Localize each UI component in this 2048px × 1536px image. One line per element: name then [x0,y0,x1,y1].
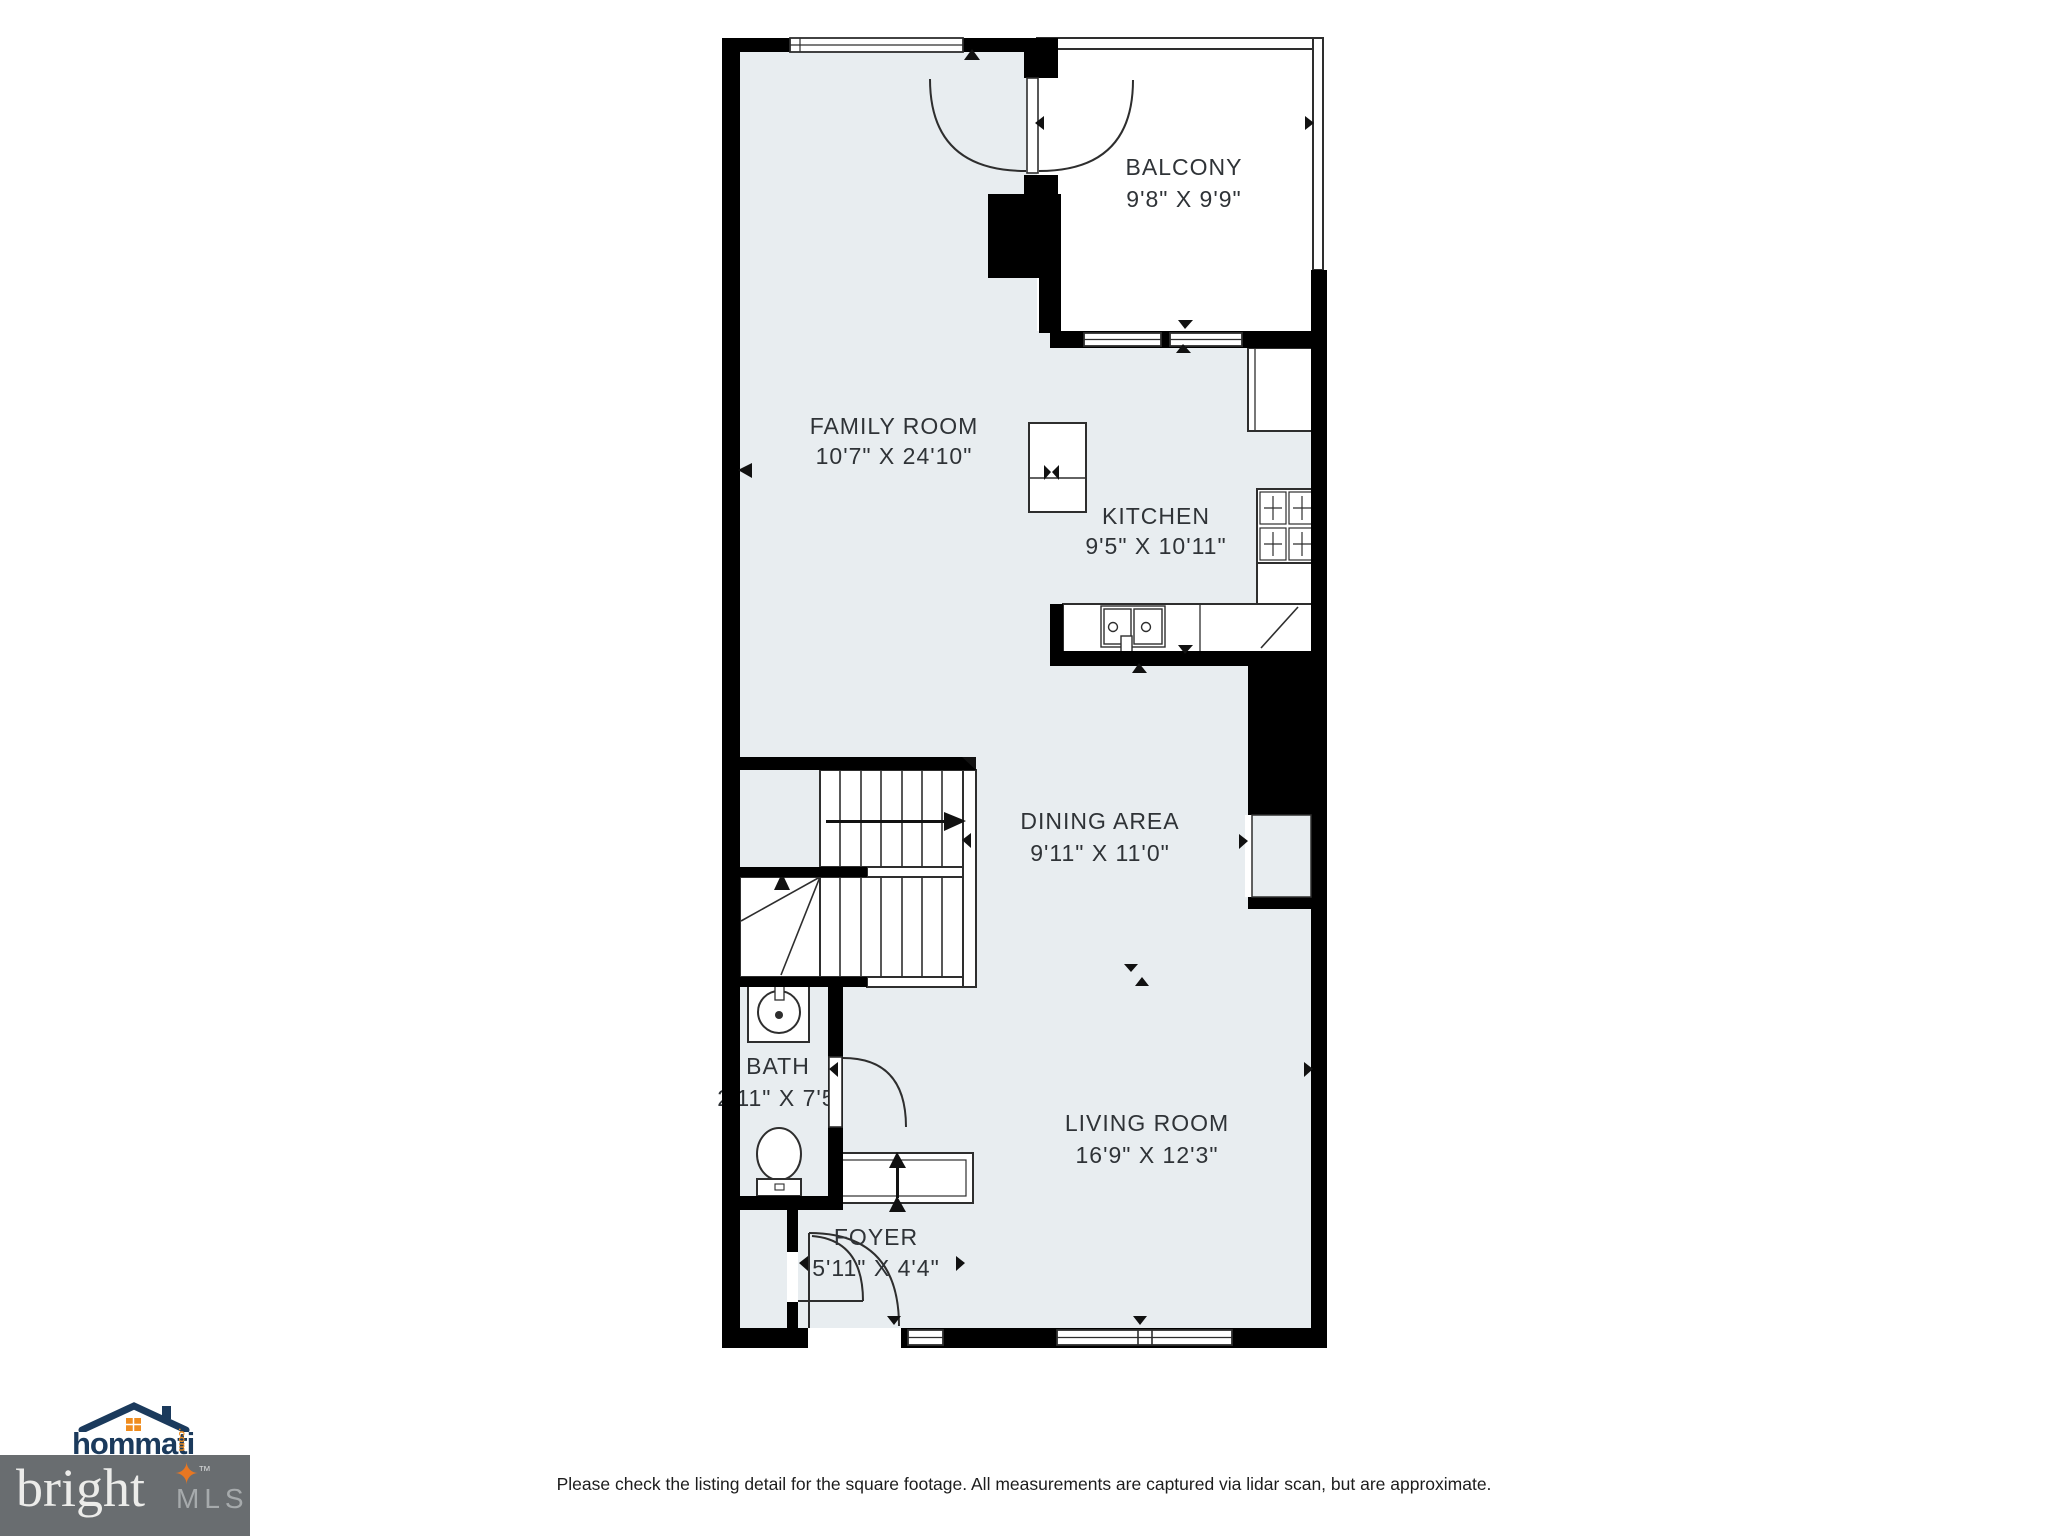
toilet [757,1128,801,1196]
room-dim-dining-area: 9'11" X 11'0" [1030,840,1170,866]
stair-rail-mid [867,867,963,877]
window-family-top [790,38,963,52]
wall-stairs-mid [740,867,867,877]
wall-niche-bottom [1248,897,1313,909]
disclaimer-text: Please check the listing detail for the … [557,1474,1492,1495]
room-label-balcony: BALCONY [1126,154,1243,180]
room-label-kitchen: KITCHEN [1102,503,1210,529]
bright-mls-text: MLS [176,1483,249,1515]
foyer-closet [830,1152,973,1212]
room-dim-foyer: 5'11" X 4'4" [812,1255,939,1281]
room-label-dining-area: DINING AREA [1020,808,1179,834]
wall-left [722,38,740,1348]
front-door-gap [808,1328,901,1348]
fridge [1248,348,1313,431]
window-balcony-1 [1084,333,1161,346]
room-dim-balcony: 9'8" X 9'9" [1126,186,1241,212]
wall-stairs-top [740,757,976,770]
wall-foyer-stub-lower [787,1302,798,1328]
bright-wordmark: bright [16,1457,145,1519]
wall-right-column [1248,651,1313,815]
hommati-tld: .com [176,1428,187,1451]
bath-sink [748,983,809,1042]
room-label-foyer: FOYER [834,1224,918,1250]
counter-right [1257,563,1313,604]
room-label-family-room: FAMILY ROOM [810,413,979,439]
room-label-living-room: LIVING ROOM [1065,1110,1229,1136]
wall-right [1311,270,1327,1348]
room-dim-family-room: 10'7" X 24'10" [816,443,973,469]
stove [1257,489,1317,563]
wall-kitchen-bottom [1050,651,1259,666]
window-living [1057,1330,1232,1345]
bright-mls-logo: bright ✦ ™ MLS [0,1455,250,1536]
wall-bath-bottom [722,1196,843,1210]
wall-balcony-divider-top [1024,38,1058,78]
window-foyer-small [908,1330,943,1345]
floorplan-drawing: 2'11" X 7'5" [0,0,2048,1536]
wall-chase-strip [1039,278,1061,333]
floorplan-page: 2'11" X 7'5" [0,0,2048,1536]
hommati-logo: hommati .com [70,1402,202,1460]
wall-stairs-bottom [740,977,867,987]
wall-chase-block [988,194,1061,278]
bright-trademark: ™ [198,1463,211,1478]
room-dim-kitchen: 9'5" X 10'11" [1085,533,1226,559]
stair-rail-bottom [867,977,963,987]
dining-niche [1245,815,1311,897]
balcony-door-leaf [1027,78,1038,173]
wall-foyer-stub-upper [787,1210,798,1252]
window-balcony-2 [1170,333,1242,346]
kitchen-sink [1101,606,1165,653]
balcony-structure [1037,38,1323,331]
foyer-side-door-gap [787,1252,798,1302]
wall-balcony-divider-bottom [1024,175,1058,194]
room-label-bath: BATH [746,1053,810,1079]
room-dim-living-room: 16'9" X 12'3" [1076,1142,1219,1168]
